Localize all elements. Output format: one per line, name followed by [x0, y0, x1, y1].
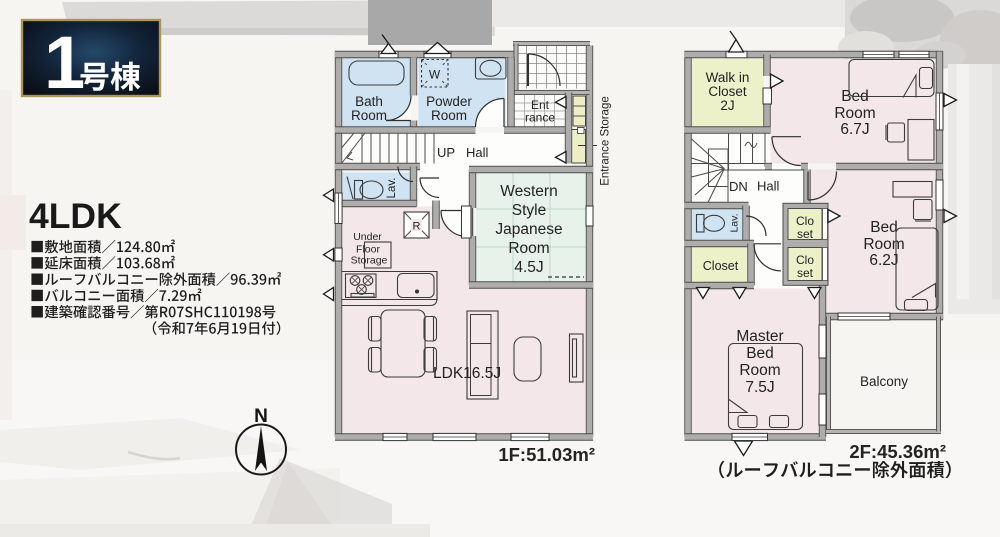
svg-text:7.5J: 7.5J — [745, 379, 774, 396]
svg-text:Room: Room — [508, 240, 549, 257]
svg-text:Clo: Clo — [796, 253, 814, 267]
svg-text:Lav.: Lav. — [729, 213, 741, 232]
svg-text:LDK16.5J: LDK16.5J — [433, 365, 501, 382]
svg-text:6.2J: 6.2J — [869, 252, 898, 269]
svg-text:Powder: Powder — [426, 94, 472, 109]
svg-text:Closet: Closet — [708, 84, 747, 99]
svg-text:rance: rance — [525, 111, 555, 125]
svg-text:Room: Room — [431, 108, 467, 123]
svg-text:R: R — [413, 221, 421, 233]
svg-text:Bed: Bed — [746, 345, 774, 362]
svg-text:1: 1 — [44, 21, 85, 104]
svg-text:Hall: Hall — [757, 179, 780, 194]
svg-text:Closet: Closet — [703, 259, 739, 273]
svg-text:Bath: Bath — [355, 94, 383, 109]
svg-text:Lav.: Lav. — [386, 178, 398, 199]
svg-text:Hall: Hall — [466, 145, 489, 160]
svg-text:2J: 2J — [720, 98, 734, 113]
svg-text:Walk in: Walk in — [706, 70, 750, 85]
svg-text:Under: Under — [353, 231, 382, 243]
svg-text:set: set — [797, 266, 814, 280]
svg-text:2F:45.36m²: 2F:45.36m² — [849, 441, 946, 462]
svg-text:4LDK: 4LDK — [29, 196, 122, 236]
svg-text:W: W — [429, 68, 441, 82]
svg-text:UP: UP — [437, 145, 455, 160]
svg-text:Room: Room — [834, 105, 875, 122]
svg-text:Room: Room — [739, 362, 780, 379]
svg-text:Room: Room — [863, 236, 904, 253]
svg-text:Storage: Storage — [351, 255, 388, 267]
svg-text:Japanese: Japanese — [495, 221, 562, 238]
svg-text:1F:51.03m²: 1F:51.03m² — [498, 444, 595, 465]
svg-text:set: set — [797, 227, 814, 241]
svg-text:DN: DN — [729, 179, 748, 194]
svg-text:Room: Room — [351, 108, 387, 123]
svg-text:Clo: Clo — [796, 214, 814, 228]
svg-text:4.5J: 4.5J — [514, 259, 543, 276]
svg-text:Balcony: Balcony — [860, 374, 908, 389]
svg-text:Entrance Storage: Entrance Storage — [600, 96, 612, 186]
svg-text:Bed: Bed — [870, 219, 898, 236]
svg-text:Style: Style — [512, 202, 546, 219]
svg-text:Western: Western — [500, 183, 557, 200]
svg-text:6.7J: 6.7J — [840, 121, 869, 138]
svg-text:Master: Master — [736, 328, 783, 345]
